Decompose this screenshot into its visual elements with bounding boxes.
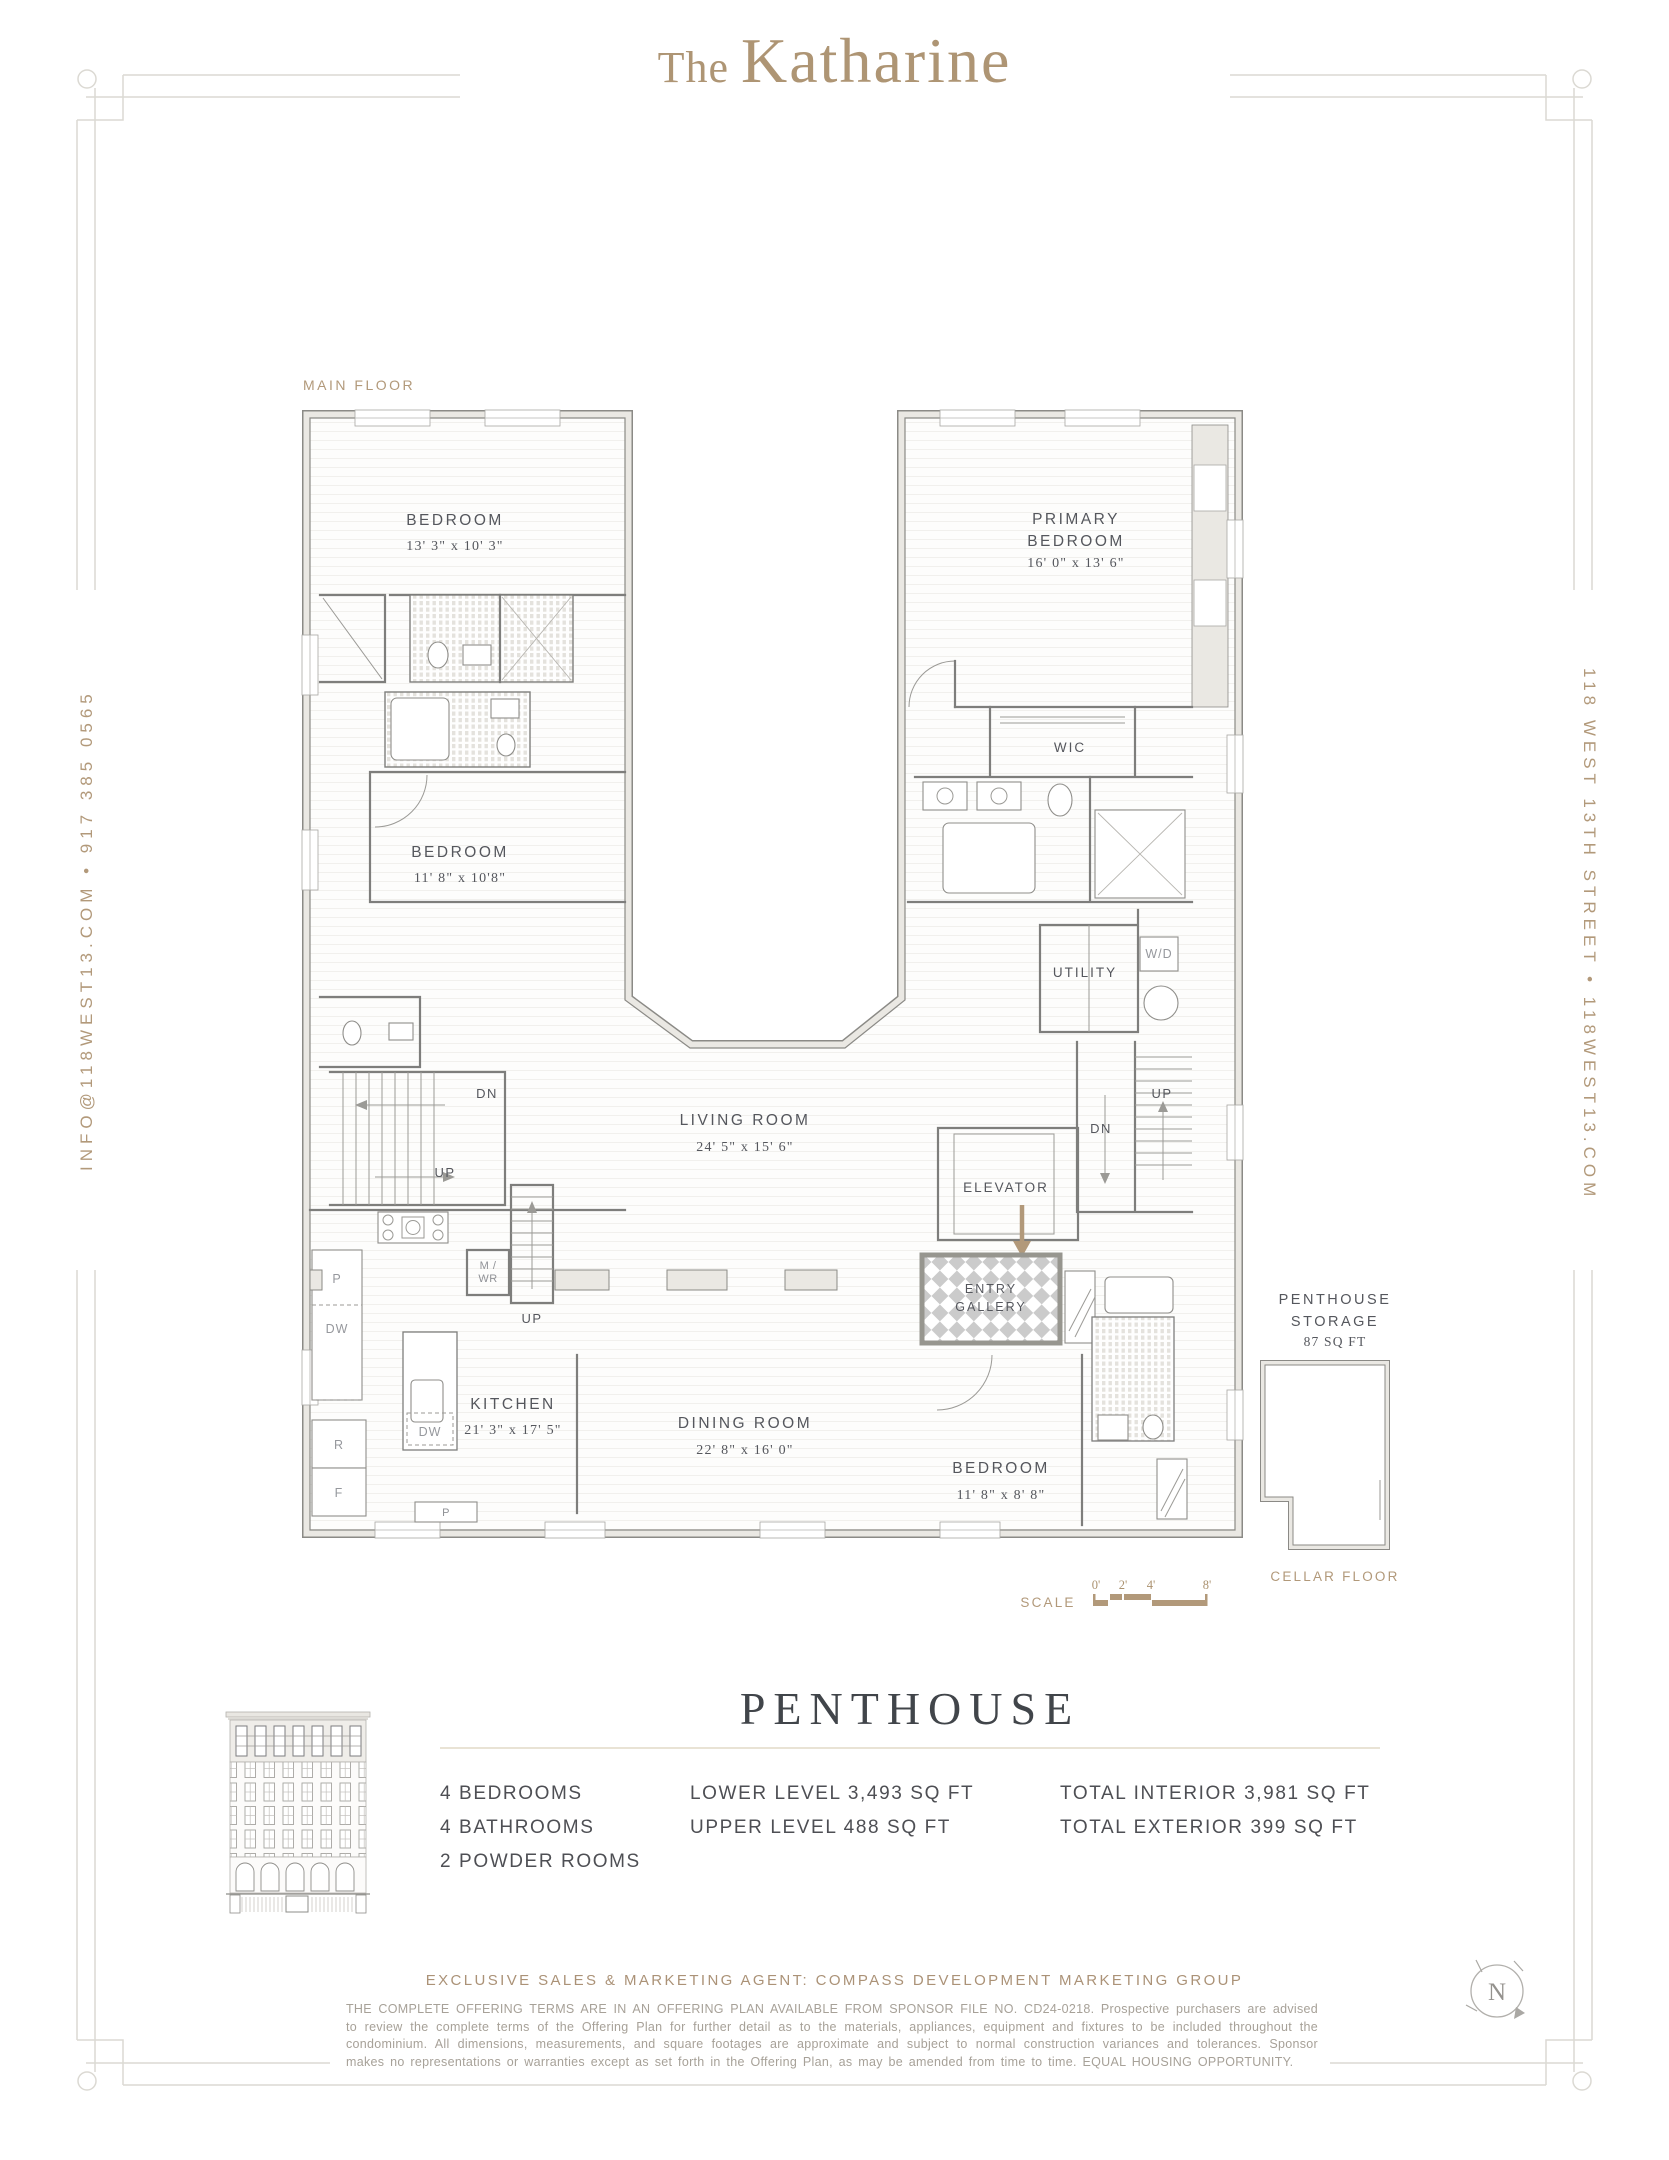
toilet (1048, 784, 1072, 816)
room-label-utility: UTILITY (1053, 965, 1117, 980)
stat-bedrooms: 4 BEDROOMS (440, 1777, 690, 1811)
storage-label1: PENTHOUSE (1279, 1292, 1392, 1308)
room-dims-kitchen: 21' 3" x 17' 5" (464, 1423, 561, 1438)
window (1194, 580, 1226, 626)
scale-bar (1093, 1594, 1208, 1606)
room-label-kitchen: KITCHEN (470, 1396, 556, 1413)
toilet (343, 1021, 361, 1045)
tub (943, 823, 1035, 893)
sales-agent-line: EXCLUSIVE SALES & MARKETING AGENT: COMPA… (0, 1972, 1669, 1989)
tub (391, 698, 449, 760)
bathroom-1 (410, 595, 573, 682)
label-refrigerator: R (334, 1438, 344, 1452)
window (1194, 465, 1226, 511)
floor-label: MAIN FLOOR (303, 377, 415, 393)
room-dims-bedroom3: 11' 8" x 8' 8" (957, 1488, 1046, 1503)
room-dims-dining: 22' 8" x 16' 0" (696, 1443, 793, 1458)
label-mwr1: M / (480, 1260, 497, 1272)
sink (1098, 1415, 1128, 1440)
building-logo: The Katharine (0, 24, 1669, 98)
divider (440, 1747, 1380, 1749)
room-dims-bedroom1: 13' 3" x 10' 3" (406, 539, 503, 554)
label-mwr2: WR (478, 1273, 497, 1285)
utility-sink (1144, 986, 1178, 1020)
unit-summary: PENTHOUSE 4 BEDROOMS 4 BATHROOMS 2 POWDE… (440, 1682, 1380, 1879)
stat-upper-level: UPPER LEVEL 488 SQ FT (690, 1811, 1060, 1845)
entry-gallery-floor (922, 1255, 1060, 1343)
room-dims-bedroom2: 11' 8" x 10'8" (414, 871, 506, 886)
vanity-sink (977, 782, 1021, 810)
vanity-sink (923, 782, 967, 810)
legal-disclaimer: THE COMPLETE OFFERING TERMS ARE IN AN OF… (346, 2001, 1318, 2071)
stat-lower-level: LOWER LEVEL 3,493 SQ FT (690, 1777, 1060, 1811)
room-label-primary2: BEDROOM (1027, 533, 1125, 550)
address-info-right: 118 WEST 13TH STREET • 118WEST13.COM (1574, 600, 1604, 1270)
room-label-bedroom3: BEDROOM (952, 1460, 1050, 1477)
scale-tick-2: 2' (1119, 1578, 1128, 1592)
label-pantry: P (332, 1272, 341, 1286)
storage-unit (1265, 1365, 1385, 1545)
label-wd: W/D (1145, 947, 1172, 961)
contact-info-left: INFO@118WEST13.COM • 917 385 0565 (72, 600, 102, 1260)
room-dims-living: 24' 5" x 15' 6" (696, 1140, 793, 1155)
sink (463, 645, 491, 665)
unit-title: PENTHOUSE (440, 1682, 1380, 1735)
logo-katharine: Katharine (741, 24, 1011, 98)
stat-powder-rooms: 2 POWDER ROOMS (440, 1845, 690, 1879)
room-label-bedroom2: BEDROOM (411, 844, 509, 861)
label-cabinet-p: P (442, 1507, 450, 1519)
tub (1105, 1277, 1173, 1313)
stair-label-up: UP (434, 1165, 455, 1180)
stair-label-dn: DN (476, 1086, 498, 1101)
room-label-elevator: ELEVATOR (963, 1180, 1049, 1195)
room-label-entry1: ENTRY (965, 1282, 1017, 1296)
room-label-wic: WIC (1054, 740, 1086, 755)
column (667, 1270, 727, 1290)
column (555, 1270, 609, 1290)
scale-tick-0: 0' (1092, 1578, 1101, 1592)
storage-area: 87 SQ FT (1304, 1334, 1367, 1349)
stat-total-exterior: TOTAL EXTERIOR 399 SQ FT (1060, 1811, 1380, 1845)
brochure-page: The Katharine INFO@118WEST13.COM • 917 3… (0, 0, 1669, 2160)
stair-label-up-right: UP (1151, 1086, 1172, 1101)
scale-tick-8: 8' (1203, 1578, 1212, 1592)
label-island-dw: DW (419, 1425, 442, 1439)
room-label-living: LIVING ROOM (680, 1112, 811, 1129)
column (785, 1270, 837, 1290)
cellar-floor-label: CELLAR FLOOR (1270, 1569, 1399, 1584)
storage-label2: STORAGE (1291, 1314, 1379, 1330)
stats-totals: TOTAL INTERIOR 3,981 SQ FT TOTAL EXTERIO… (1060, 1777, 1380, 1879)
sink (389, 1023, 413, 1040)
toilet (497, 734, 515, 756)
stair-label-dn-right: DN (1090, 1121, 1112, 1136)
north-compass-icon: N (1450, 1944, 1545, 2039)
unit-stats: 4 BEDROOMS 4 BATHROOMS 2 POWDER ROOMS LO… (440, 1777, 1380, 1879)
room-label-entry2: GALLERY (955, 1300, 1026, 1314)
room-label-dining: DINING ROOM (678, 1415, 812, 1432)
north-letter: N (1488, 1979, 1506, 2006)
room-label-bedroom1: BEDROOM (406, 512, 504, 529)
scale-label: SCALE (1020, 1595, 1075, 1610)
room-dims-primary: 16' 0" x 13' 6" (1027, 556, 1124, 571)
stat-bathrooms: 4 BATHROOMS (440, 1811, 690, 1845)
stats-levels: LOWER LEVEL 3,493 SQ FT UPPER LEVEL 488 … (690, 1777, 1060, 1879)
island-sink (411, 1380, 443, 1422)
building-illustration (222, 1710, 374, 1914)
floor-plan: BEDROOM 13' 3" x 10' 3" PRIMARY BEDROOM … (295, 405, 1475, 1620)
stats-rooms: 4 BEDROOMS 4 BATHROOMS 2 POWDER ROOMS (440, 1777, 690, 1879)
toilet (1143, 1415, 1163, 1439)
stat-total-interior: TOTAL INTERIOR 3,981 SQ FT (1060, 1777, 1380, 1811)
logo-the: The (658, 42, 729, 93)
scale-tick-4: 4' (1147, 1578, 1156, 1592)
room-label-primary1: PRIMARY (1032, 511, 1120, 528)
stair-label-up-kitchen: UP (521, 1311, 542, 1326)
label-dw: DW (326, 1322, 349, 1336)
sink (491, 699, 519, 718)
toilet (428, 642, 448, 668)
label-freezer: F (335, 1486, 344, 1500)
